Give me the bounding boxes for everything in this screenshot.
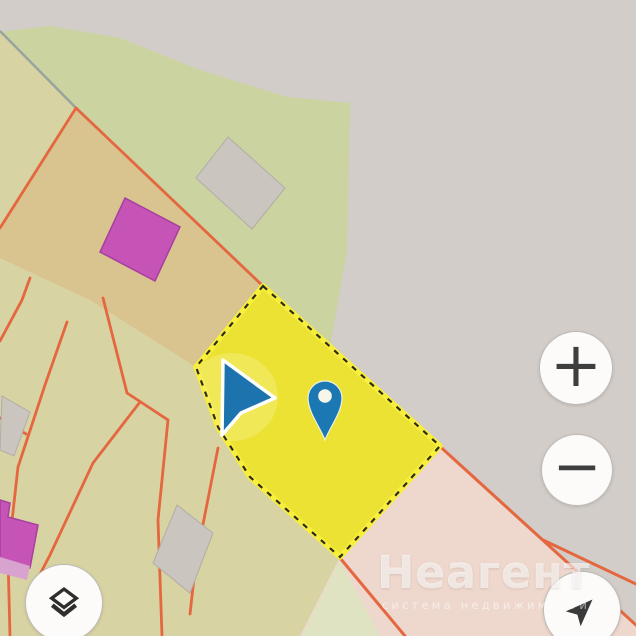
zoom-in-button[interactable]: + bbox=[539, 331, 613, 405]
navigation-arrow-icon bbox=[565, 593, 599, 627]
layers-icon bbox=[45, 584, 83, 622]
plus-icon: + bbox=[550, 334, 602, 396]
zoom-out-button[interactable]: − bbox=[541, 434, 613, 506]
layers-button[interactable] bbox=[25, 564, 103, 636]
map-screen: + − Неагент система недвижимости bbox=[0, 0, 636, 636]
minus-icon: − bbox=[553, 437, 602, 495]
map-canvas[interactable] bbox=[0, 0, 636, 636]
